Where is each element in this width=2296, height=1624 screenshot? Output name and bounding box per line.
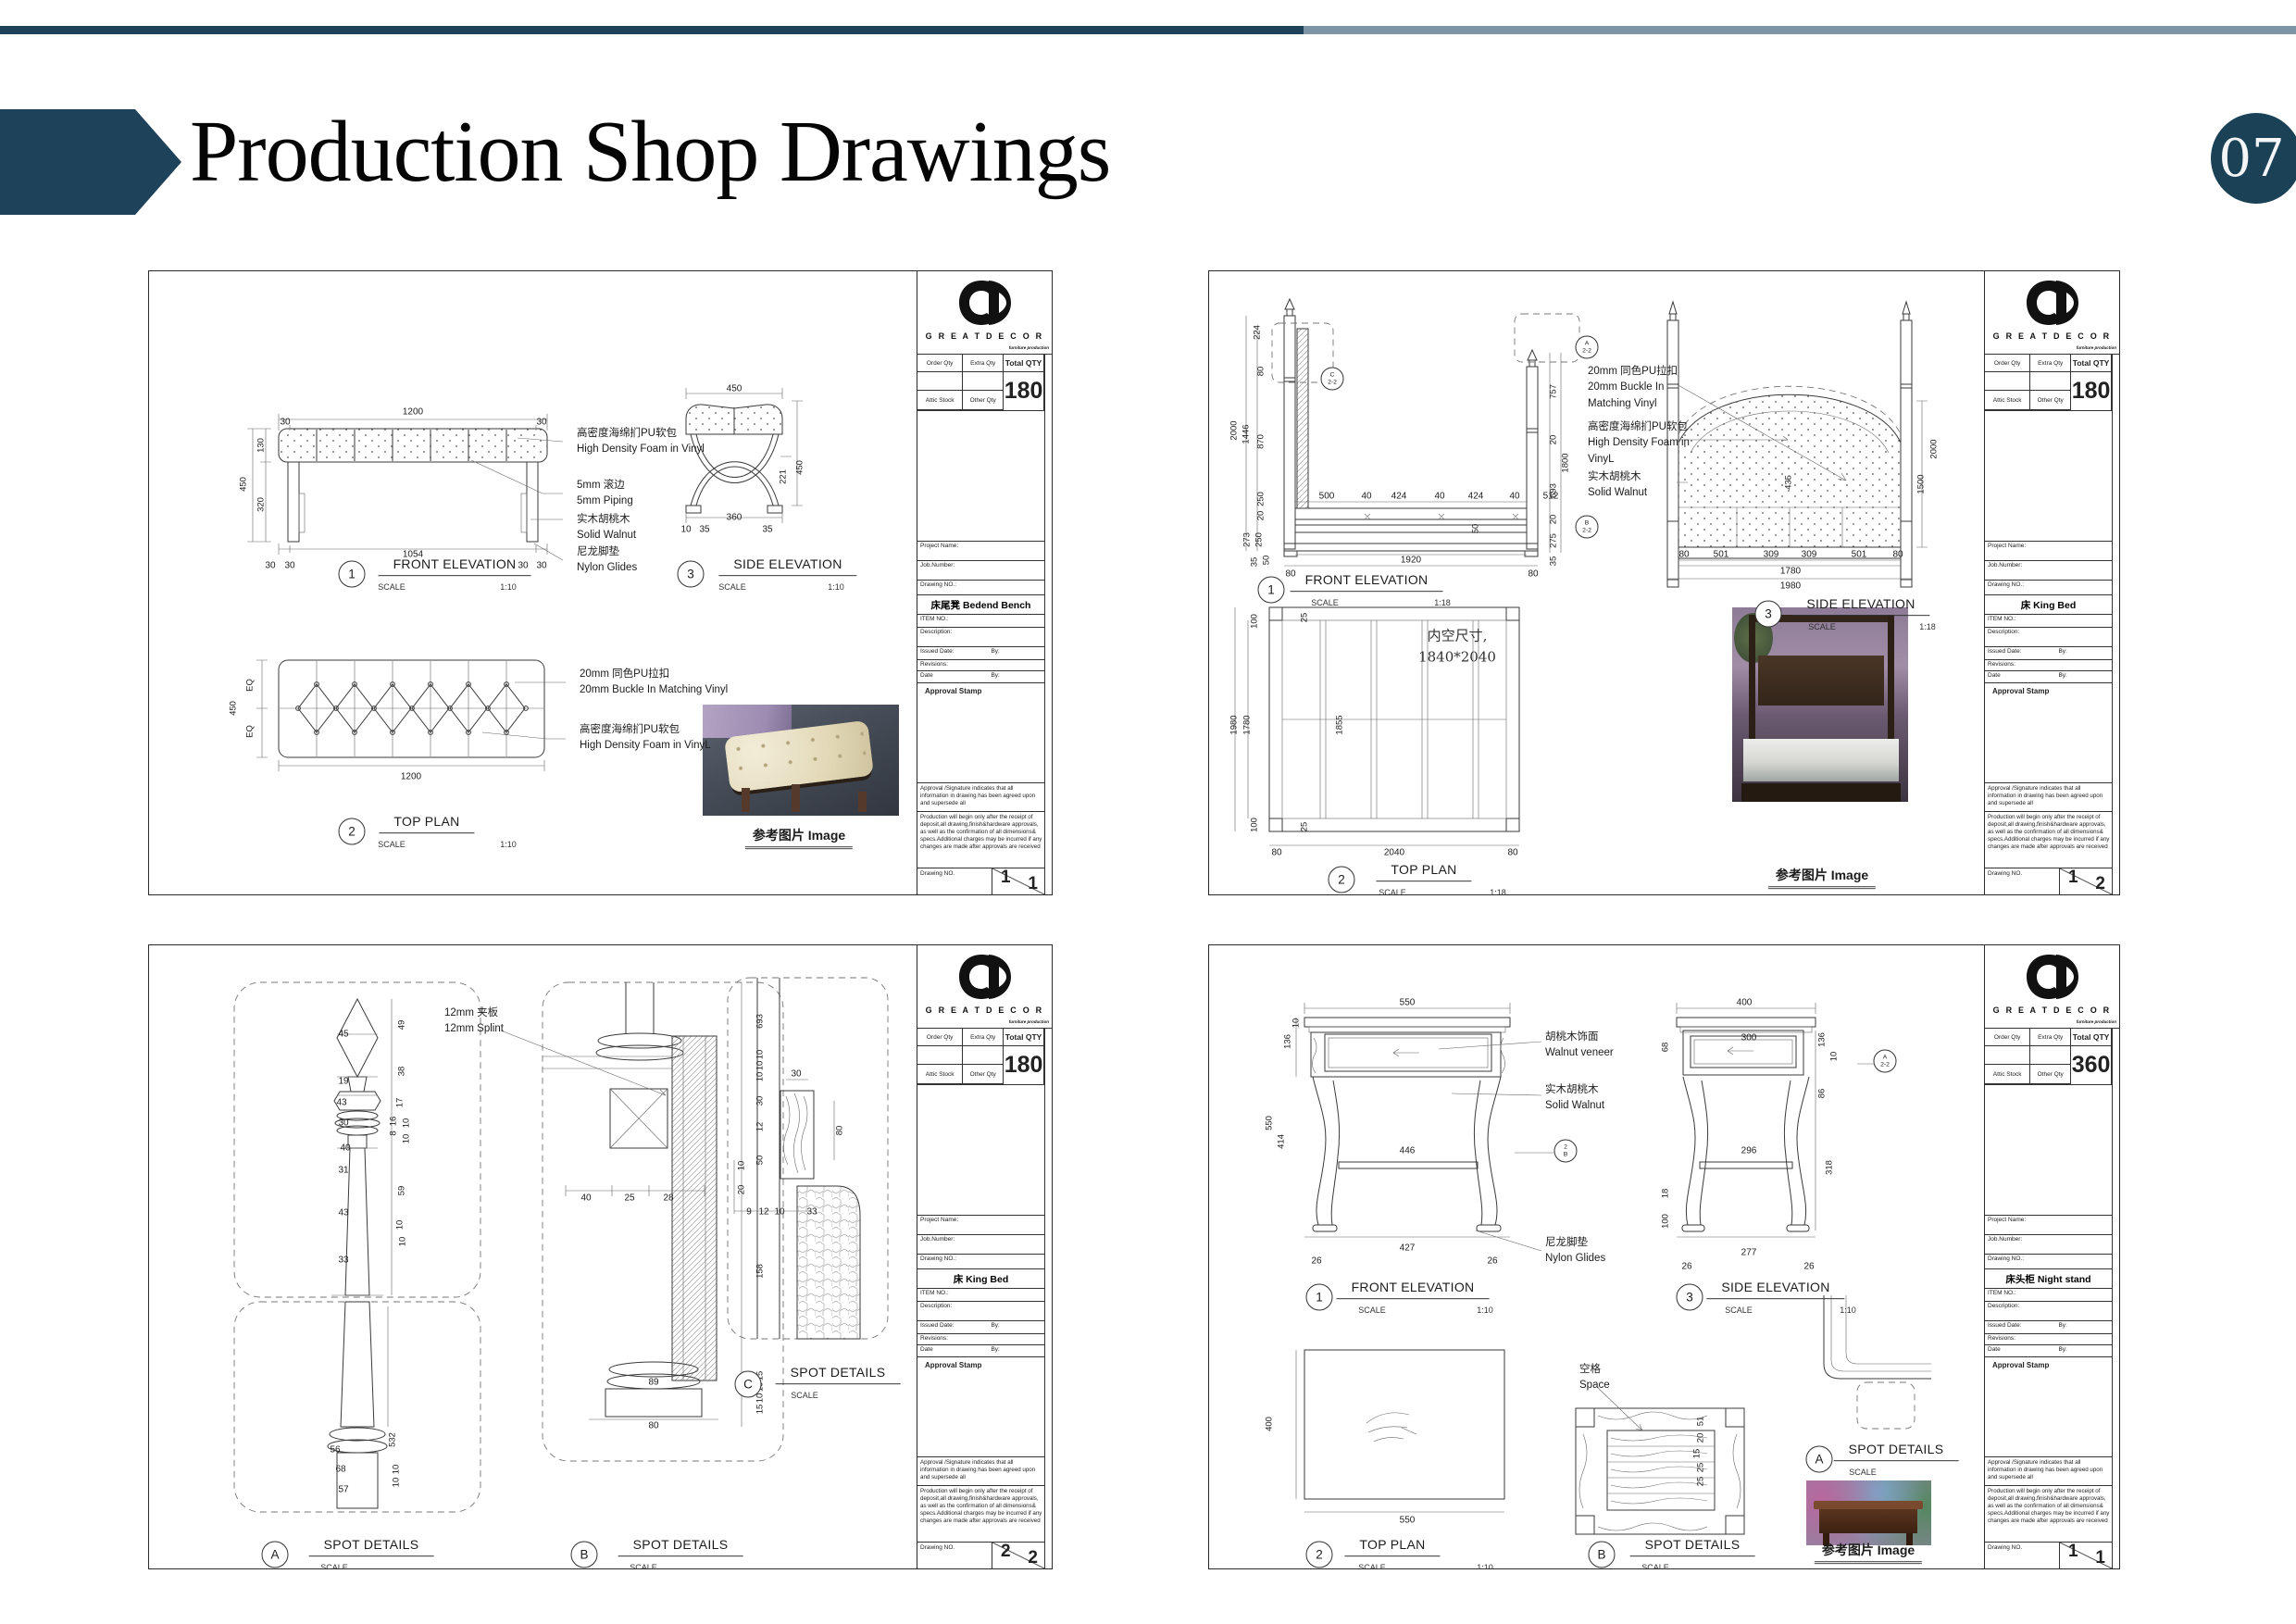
dim-label: 35 — [762, 524, 772, 534]
scale-label: SCALE — [1641, 1563, 1669, 1568]
job-number-label: Job.Number: — [920, 1236, 955, 1243]
titleblock-bedend-bench: G R E A T D E C O R furniture production… — [917, 271, 1052, 894]
note-text: 内空尺寸, — [1428, 629, 1488, 644]
quantity-table: Order Qty Extra Qty Total QTY 180 Attic … — [917, 1029, 1044, 1085]
drawing-area-bedend-bench: 12003030130450320105430303030高密度海绵扪PU软包 … — [149, 271, 917, 894]
scale-label: 1:18 — [1490, 888, 1506, 894]
dim-label: 80 — [1892, 549, 1903, 559]
job-number-row: Job.Number: — [917, 561, 1044, 581]
dim-label: 400 — [1737, 997, 1753, 1007]
sheet-number-bottom: 1 — [1028, 874, 1038, 894]
sheet-number-top: 1 — [1001, 868, 1011, 888]
job-number-label: Job.Number: — [1988, 1236, 2022, 1243]
date-row: Date By: — [917, 1345, 1044, 1357]
description-label: Description: — [1988, 629, 2019, 635]
date-label: Date — [920, 1346, 933, 1353]
sheet-number-bottom: 2 — [2095, 874, 2105, 894]
dim-label: 532 — [389, 1432, 399, 1447]
dim-label: 30 — [536, 417, 546, 427]
material-label: 尼龙脚垫 Nylon Glides — [577, 544, 637, 577]
view-title: SIDE ELEVATION — [1791, 597, 1929, 616]
scale-label: 1:10 — [500, 840, 517, 849]
dim-label: 26 — [1803, 1261, 1814, 1271]
dim-label: 25 — [1301, 822, 1311, 832]
titleblock-spacer — [1985, 1085, 2112, 1216]
titleblock-spacer — [917, 411, 1044, 542]
total-qty-value: 180 — [1004, 372, 1044, 410]
dim-label: 309 — [1764, 549, 1779, 559]
revisions-label: Revisions: — [1988, 661, 2015, 668]
issued-date-label: Issued Date: — [1988, 648, 2022, 655]
titleblock-spacer — [1985, 411, 2112, 542]
approval-note-1: Approval /Signature indicates that all i… — [917, 1457, 1044, 1486]
dim-label: 10 — [393, 1465, 403, 1475]
photo-caption: 参考图片 Image — [1815, 1543, 1922, 1564]
material-label: 高密度海绵扪PU软包 High Density Foam in VinyL — [580, 722, 711, 755]
issued-by-label: By: — [2058, 1322, 2066, 1329]
order-qty-label: Order Qty — [1985, 1029, 2030, 1046]
titleblock-night-stand: G R E A T D E C O R furniture production… — [1984, 945, 2119, 1568]
dim-label: 10 — [396, 1220, 406, 1230]
dim-label: 80 — [1271, 847, 1281, 857]
order-qty-value — [1985, 1046, 2030, 1065]
date-by-label: By: — [991, 1346, 999, 1353]
dim-label: 45 — [338, 1029, 348, 1039]
project-name-label: Project Name: — [920, 1217, 958, 1223]
order-qty-label: Order Qty — [1985, 355, 2030, 372]
dim-label: 12 — [758, 1206, 768, 1217]
page-number: 07 — [2218, 129, 2284, 189]
scale-label: SCALE — [1379, 888, 1406, 894]
drawing-no-label: Drawing NO.: — [920, 1255, 956, 1262]
approval-stamp-area: Approval Stamp — [1985, 683, 2112, 783]
panel-king-bed-sheet2: 4519433040314333493817161081059101053256… — [148, 944, 1053, 1569]
dim-label: 80 — [1507, 847, 1517, 857]
dim-label: 427 — [1400, 1243, 1416, 1253]
scale-label: SCALE — [1358, 1305, 1386, 1315]
drawing-number-footer: Drawing NO. 1 1 — [917, 868, 1045, 894]
dim-label: 26 — [1681, 1261, 1691, 1271]
night-stand-reference-photo — [1806, 1480, 1931, 1545]
view-number: 1 — [339, 561, 366, 588]
view-title: SPOT DETAILS — [1630, 1538, 1755, 1556]
extra-qty-label: Extra Qty — [2030, 355, 2071, 372]
attic-stock-label: Attic Stock — [1985, 1065, 2030, 1084]
other-qty-label: Other Qty — [963, 1065, 1004, 1084]
dim-label: 400 — [1266, 1417, 1276, 1431]
bench-reference-photo — [703, 705, 899, 816]
scale-label: 1:10 — [500, 582, 517, 592]
view-title: SPOT DETAILS — [1834, 1443, 1959, 1461]
drawing-no-row: Drawing NO.: — [1985, 1255, 2112, 1269]
approval-stamp-label: Approval Stamp — [925, 687, 981, 695]
scale-label: SCALE — [1358, 1563, 1386, 1568]
dim-label: 30 — [791, 1068, 801, 1079]
page-title: Production Shop Drawings — [190, 102, 1110, 202]
dim-label: 40 — [1509, 491, 1519, 501]
total-qty-value: 180 — [2071, 372, 2112, 410]
dim-label: 15 — [1693, 1449, 1703, 1459]
dim-label: 20 — [1550, 515, 1560, 525]
scale-label: 1:10 — [1477, 1305, 1493, 1315]
dim-label: 1980 — [1780, 581, 1801, 591]
approval-note-1: Approval /Signature indicates that all i… — [917, 783, 1044, 812]
brand-area: G R E A T D E C O R furniture production — [917, 271, 1052, 355]
date-label: Date — [1988, 672, 2001, 679]
material-label: 实木胡桃木 Solid Walnut — [1588, 469, 1647, 502]
dim-label: 424 — [1468, 491, 1484, 501]
issued-date-label: Issued Date: — [920, 1322, 955, 1329]
dim-label: 870 — [1257, 434, 1267, 449]
sheet-number-top: 1 — [2068, 1542, 2078, 1562]
material-label: 尼龙脚垫 Nylon Glides — [1545, 1235, 1605, 1268]
dim-label: 435 — [1785, 475, 1795, 490]
date-by-label: By: — [2058, 1346, 2066, 1353]
dim-label: 2000 — [1230, 420, 1241, 440]
dim-label: 1500 — [1917, 474, 1928, 493]
approval-stamp-label: Approval Stamp — [1992, 687, 2049, 695]
issued-by-label: By: — [991, 648, 999, 655]
sheet-number-box: 2 2 — [992, 1543, 1044, 1568]
scale-label: SCALE — [718, 582, 746, 592]
dim-label: 35 — [1251, 557, 1261, 568]
job-number-row: Job.Number: — [1985, 1235, 2112, 1255]
job-number-row: Job.Number: — [917, 1235, 1044, 1255]
drawing-number-footer: Drawing NO. 1 2 — [1985, 868, 2113, 894]
material-label: 实木胡桃木 Solid Walnut — [577, 512, 636, 544]
title-pennant-shape — [0, 109, 185, 221]
dim-label: 35 — [1550, 556, 1560, 567]
revisions-label: Revisions: — [920, 661, 948, 668]
view-title: FRONT ELEVATION — [1291, 573, 1443, 592]
dim-label: 30 — [280, 417, 290, 427]
attic-stock-label: Attic Stock — [1985, 391, 2030, 410]
scale-label: SCALE — [1311, 598, 1339, 607]
project-name-row: Project Name: — [1985, 542, 2112, 561]
total-qty-label: Total QTY — [1004, 1029, 1044, 1046]
description-row: Description: — [1985, 1302, 2112, 1321]
dim-label: 500 — [1319, 491, 1335, 501]
issued-by-label: By: — [2058, 648, 2066, 655]
order-qty-label: Order Qty — [917, 1029, 963, 1046]
material-label: 12mm 夹板 12mm Splint — [444, 1006, 504, 1038]
approval-stamp-label: Approval Stamp — [925, 1361, 981, 1369]
item-no-label: ITEM NO.: — [920, 1290, 949, 1296]
view-number: A — [1806, 1446, 1833, 1473]
brand-area: G R E A T D E C O R furniture production — [1985, 271, 2119, 355]
dim-label: 40 — [580, 1193, 591, 1203]
issued-date-label: Issued Date: — [1988, 1322, 2022, 1329]
approval-note-2: Production will begin only after the rec… — [917, 1486, 1044, 1542]
dim-label: 424 — [1391, 491, 1407, 501]
date-label: Date — [920, 672, 933, 679]
dim-label: 25 — [1697, 1477, 1707, 1487]
scale-label: SCALE — [791, 1391, 818, 1400]
dim-label: 30 — [338, 1118, 348, 1128]
dim-label: 275 — [1550, 533, 1560, 548]
approval-stamp-area: Approval Stamp — [1985, 1357, 2112, 1457]
dim-label: 80 — [648, 1420, 658, 1430]
photo-caption: 参考图片 Image — [1768, 868, 1876, 889]
description-label: Description: — [920, 629, 952, 635]
dim-label: 80 — [1257, 367, 1267, 377]
dim-label: 40 — [1361, 491, 1371, 501]
page-number-badge: 07 — [2211, 113, 2296, 204]
dim-label: 33 — [338, 1255, 348, 1265]
dim-label: 10 — [756, 1393, 767, 1404]
issued-date-label: Issued Date: — [920, 648, 955, 655]
dim-label: 10 — [756, 1072, 767, 1082]
great-decor-logo-icon — [2025, 953, 2080, 1001]
item-no-row: ITEM NO.: — [1985, 1289, 2112, 1302]
approval-note-1: Approval /Signature indicates that all i… — [1985, 1457, 2112, 1486]
dim-label: 26 — [1487, 1255, 1497, 1266]
dim-label: 1800 — [1562, 453, 1572, 472]
dim-label: 10 — [393, 1478, 403, 1488]
king-bed-reference-photo — [1732, 607, 1908, 802]
dim-label: 100 — [1251, 818, 1261, 832]
dim-label: 68 — [1662, 1043, 1672, 1053]
approval-stamp-area: Approval Stamp — [917, 683, 1044, 783]
view-title: TOP PLAN — [379, 815, 474, 833]
dim-label: 80 — [1678, 549, 1689, 559]
view-title: SIDE ELEVATION — [1706, 1280, 1844, 1299]
view-title: SPOT DETAILS — [309, 1538, 434, 1556]
dim-label: 25 — [1697, 1463, 1707, 1473]
material-label: 20mm 同色PU拉扣 20mm Buckle In Matching Viny… — [1588, 364, 1678, 412]
extra-qty-value — [963, 1046, 1004, 1065]
approval-note-2: Production will begin only after the rec… — [1985, 812, 2112, 868]
dim-label: 1200 — [403, 406, 423, 417]
dim-label: 20 — [738, 1185, 748, 1195]
dim-label: 450 — [240, 477, 250, 492]
approval-note-2: Production will begin only after the rec… — [917, 812, 1044, 868]
titleblock-king-bed-1: G R E A T D E C O R furniture production… — [1984, 271, 2119, 894]
dim-label: 1855 — [1336, 715, 1346, 734]
material-label: 高密度海绵扪PU软包 High Density Foam in Vinyl — [577, 426, 705, 458]
dim-label: 25 — [1301, 613, 1311, 623]
view-number: 2 — [1329, 867, 1355, 893]
other-qty-label: Other Qty — [2030, 1065, 2071, 1084]
date-row: Date By: — [1985, 1345, 2112, 1357]
order-qty-value — [917, 372, 963, 391]
dim-label: EQ — [246, 725, 256, 738]
drawing-no-footer-label: Drawing NO. — [917, 868, 992, 894]
drawing-name: 床头柜 Night stand — [1985, 1269, 2112, 1289]
material-label: 实木胡桃木 Solid Walnut — [1545, 1082, 1604, 1115]
dim-label: 59 — [398, 1186, 408, 1196]
drawing-area-night-stand: 550136105504144464272626胡桃木饰面 Walnut ven… — [1209, 945, 1984, 1568]
dim-label: 136 — [1818, 1032, 1828, 1047]
item-no-label: ITEM NO.: — [1988, 1290, 2016, 1296]
dim-label: 158 — [756, 1264, 767, 1279]
view-number: 1 — [1306, 1284, 1333, 1311]
drawing-name: 床 King Bed — [917, 1269, 1044, 1289]
date-by-label: By: — [991, 672, 999, 679]
dim-label: 277 — [1741, 1247, 1757, 1257]
dim-label: 693 — [756, 1014, 767, 1029]
view-number: 3 — [1755, 601, 1782, 628]
great-decor-logo-icon — [957, 953, 1013, 1001]
dim-label: 30 — [284, 560, 294, 570]
job-number-label: Job.Number: — [920, 562, 955, 568]
brand-subtitle: furniture production — [1009, 1019, 1049, 1024]
project-name-row: Project Name: — [917, 1216, 1044, 1235]
great-decor-logo-icon — [957, 279, 1013, 327]
approval-stamp-label: Approval Stamp — [1992, 1361, 2049, 1369]
drawing-no-footer-label: Drawing NO. — [1985, 1543, 2059, 1568]
revisions-label: Revisions: — [920, 1335, 948, 1342]
drawing-no-label: Drawing NO.: — [920, 581, 956, 588]
detail-marker: 2 B — [1554, 1140, 1578, 1163]
dim-label: 100 — [1251, 614, 1261, 629]
total-qty-label: Total QTY — [2071, 355, 2112, 372]
item-no-row: ITEM NO.: — [917, 615, 1044, 628]
view-title: TOP PLAN — [1344, 1538, 1440, 1556]
view-title: FRONT ELEVATION — [1337, 1280, 1490, 1299]
date-row: Date By: — [917, 671, 1044, 683]
dim-label: 89 — [648, 1377, 658, 1387]
view-number: 2 — [1306, 1542, 1333, 1568]
dim-label: 31 — [338, 1165, 348, 1175]
scale-label: SCALE — [320, 1563, 348, 1568]
brand-name: G R E A T D E C O R — [917, 331, 1052, 341]
dim-label: 40 — [1434, 491, 1444, 501]
material-label: 高密度海绵扪PU软包 High Density Foam in VinyL — [1588, 419, 1690, 468]
description-label: Description: — [1988, 1303, 2019, 1309]
spot-details-linework — [149, 945, 916, 1566]
dim-label: 1200 — [401, 771, 421, 781]
dim-label: 51 — [1697, 1417, 1707, 1427]
scale-label: 1:10 — [1477, 1563, 1493, 1568]
dim-label: 300 — [1741, 1032, 1757, 1043]
note-text: 1840*2040 — [1418, 650, 1496, 666]
issued-date-row: Issued Date: By: — [1985, 647, 2112, 660]
view-title: TOP PLAN — [1376, 863, 1471, 881]
dim-label: 28 — [663, 1193, 673, 1203]
dim-label: 10 — [738, 1161, 748, 1171]
dim-label: 12 — [756, 1122, 767, 1132]
revisions-row: Revisions: — [917, 1334, 1044, 1345]
date-label: Date — [1988, 1346, 2001, 1353]
view-title: SIDE ELEVATION — [718, 557, 856, 576]
drawing-area-king-bed-2: 4519433040314333493817161081059101053256… — [149, 945, 917, 1568]
sheet-number-top: 2 — [1001, 1542, 1011, 1562]
brand-name: G R E A T D E C O R — [917, 1006, 1052, 1015]
drawing-name: 床 King Bed — [1985, 595, 2112, 615]
top-bar-slate — [1304, 26, 2296, 34]
slide: Production Shop Drawings 07 — [0, 0, 2296, 1624]
description-label: Description: — [920, 1303, 952, 1309]
dim-label: 136 — [1284, 1034, 1294, 1049]
job-number-label: Job.Number: — [1988, 562, 2022, 568]
drawing-no-label: Drawing NO.: — [1988, 581, 2024, 588]
dim-label: 68 — [335, 1464, 345, 1474]
description-row: Description: — [1985, 628, 2112, 647]
dim-label: 221 — [780, 469, 790, 484]
dim-label: 17 — [396, 1098, 406, 1108]
dim-label: 50 — [756, 1156, 767, 1166]
drawing-number-footer: Drawing NO. 2 2 — [917, 1542, 1045, 1568]
dim-label: 19 — [338, 1076, 348, 1086]
project-name-label: Project Name: — [1988, 543, 2026, 549]
top-bar-navy — [0, 26, 1304, 34]
view-number: A — [262, 1542, 289, 1568]
total-qty-label: Total QTY — [2071, 1029, 2112, 1046]
panel-bedend-bench: 12003030130450320105430303030高密度海绵扪PU软包 … — [148, 270, 1053, 895]
dim-label: 33 — [806, 1206, 817, 1217]
scale-label: SCALE — [630, 1563, 657, 1568]
dim-label: 450 — [796, 460, 806, 475]
dim-label: 38 — [398, 1067, 408, 1077]
drawing-no-footer-label: Drawing NO. — [1985, 868, 2059, 894]
panel-king-bed-sheet1: 2242000144680870250202732503550500404244… — [1208, 270, 2120, 895]
dim-label: 50 — [1472, 524, 1482, 534]
dim-label: 446 — [1400, 1145, 1416, 1156]
project-name-row: Project Name: — [1985, 1216, 2112, 1235]
project-name-label: Project Name: — [920, 543, 958, 549]
dim-label: 273 — [1243, 532, 1254, 547]
sheet-number-top: 1 — [2068, 868, 2078, 888]
scale-label: 1:18 — [1919, 622, 1936, 631]
dim-label: 1920 — [1401, 555, 1421, 565]
great-decor-logo-icon — [2025, 279, 2080, 327]
dim-label: 550 — [1266, 1116, 1276, 1131]
quantity-table: Order Qty Extra Qty Total QTY 180 Attic … — [1985, 355, 2112, 411]
scale-label: 1:18 — [1434, 598, 1451, 607]
dim-label: 30 — [756, 1096, 767, 1106]
dim-label: 10 — [1292, 1018, 1303, 1029]
extra-qty-label: Extra Qty — [963, 355, 1004, 372]
dim-label: 25 — [624, 1193, 634, 1203]
drawing-number-footer: Drawing NO. 1 1 — [1985, 1542, 2113, 1568]
total-qty-value: 180 — [1004, 1046, 1044, 1084]
dim-label: 50 — [1263, 556, 1273, 566]
view-number: 3 — [1677, 1284, 1703, 1311]
dim-label: 130 — [257, 438, 268, 453]
order-qty-label: Order Qty — [917, 355, 963, 372]
dim-label: 80 — [836, 1126, 846, 1136]
issued-date-row: Issued Date: By: — [917, 647, 1044, 660]
dim-label: 10 — [756, 1061, 767, 1071]
dim-label: 9 — [746, 1206, 752, 1217]
dim-label: 30 — [536, 560, 546, 570]
dim-label: 20 — [1257, 511, 1267, 521]
detail-marker: B 2-2 — [1576, 516, 1599, 539]
total-qty-label: Total QTY — [1004, 355, 1044, 372]
dim-label: 757 — [1550, 384, 1560, 399]
drawing-no-label: Drawing NO.: — [1988, 1255, 2024, 1262]
dim-label: 43 — [336, 1097, 346, 1107]
scale-label: SCALE — [378, 840, 406, 849]
titleblock-king-bed-2: G R E A T D E C O R furniture production… — [917, 945, 1052, 1568]
material-label: 空格 Space — [1579, 1362, 1610, 1394]
dim-label: 450 — [230, 701, 240, 716]
approval-note-2: Production will begin only after the rec… — [1985, 1486, 2112, 1542]
scale-label: 1:10 — [828, 582, 844, 592]
view-number: 1 — [1258, 577, 1285, 604]
order-qty-value — [917, 1046, 963, 1065]
dim-label: 501 — [1852, 549, 1867, 559]
issued-date-row: Issued Date: By: — [917, 1321, 1044, 1334]
dim-label: 10 — [403, 1134, 413, 1144]
issued-date-row: Issued Date: By: — [1985, 1321, 2112, 1334]
order-qty-value — [1985, 372, 2030, 391]
dim-label: 318 — [1826, 1160, 1836, 1175]
dim-label: 501 — [1714, 549, 1729, 559]
dim-label: 30 — [265, 560, 275, 570]
titleblock-spacer — [917, 1085, 1044, 1216]
